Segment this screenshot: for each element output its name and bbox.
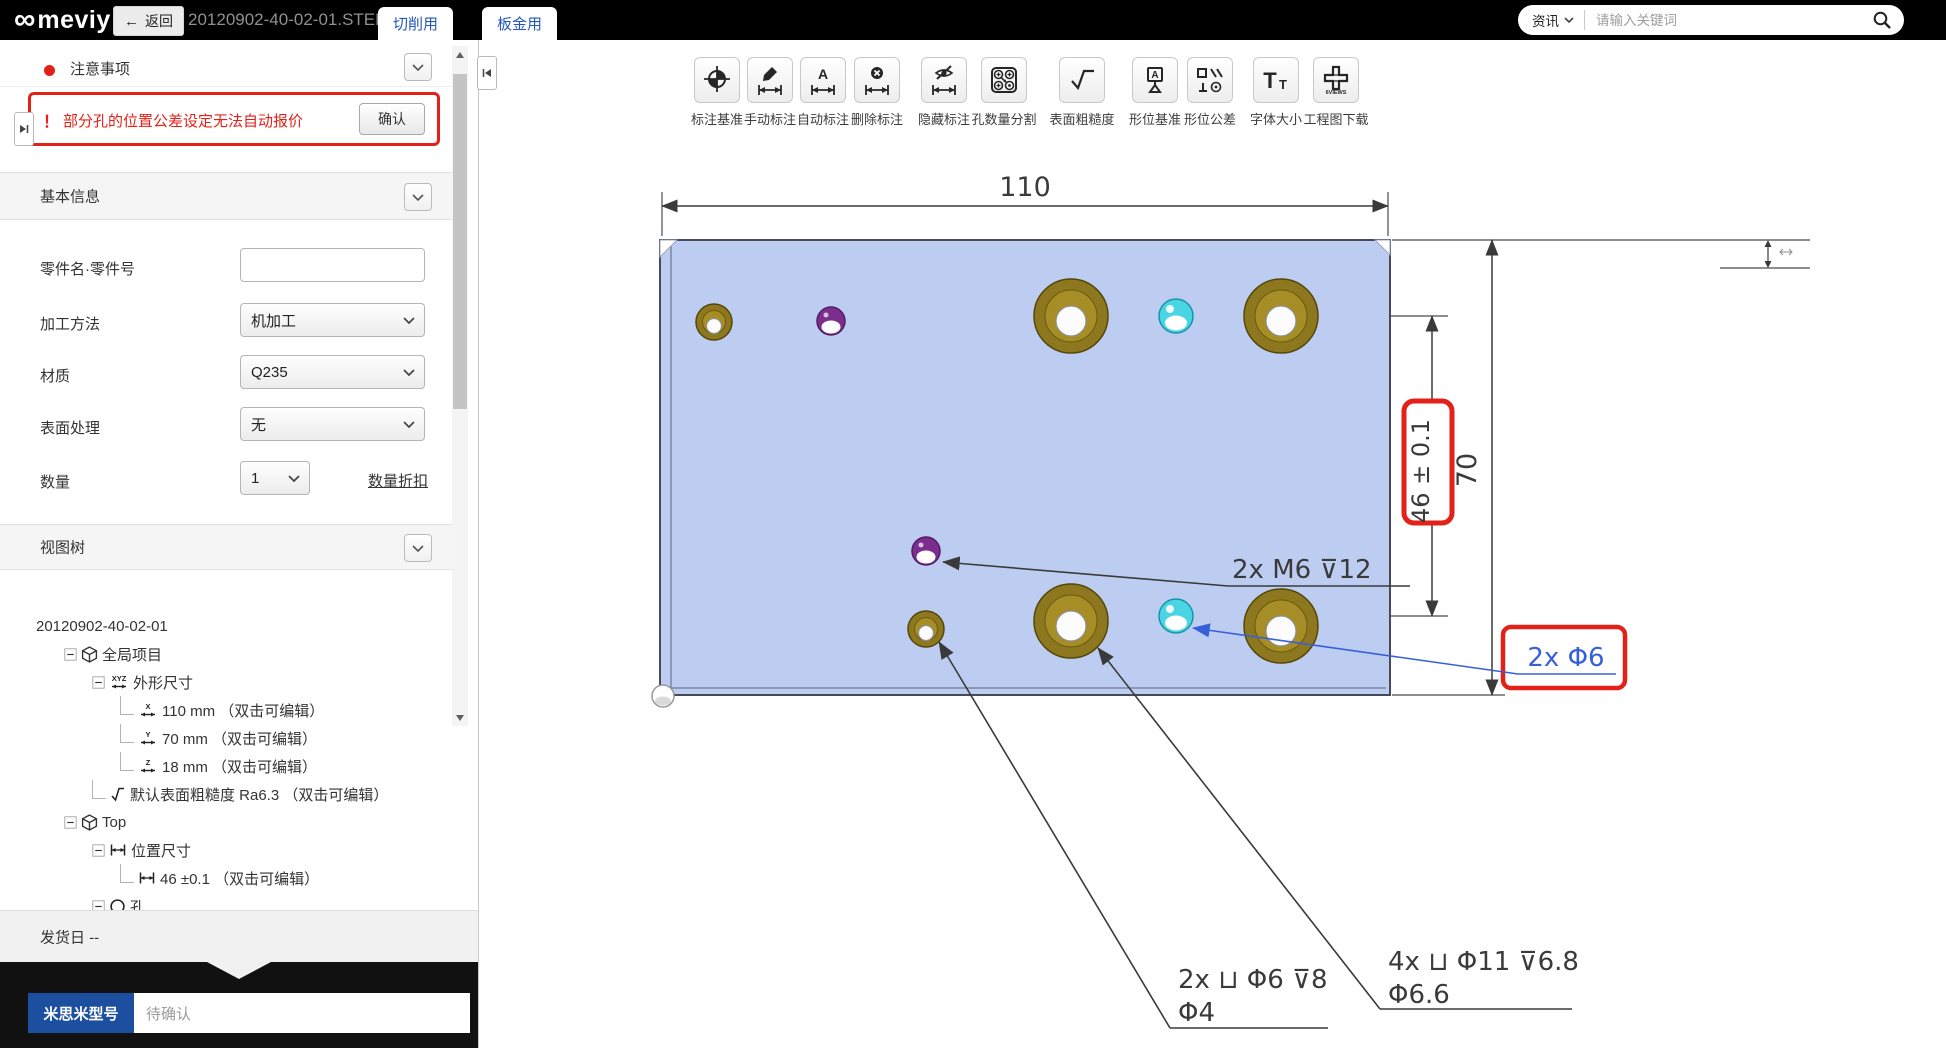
hole-cbore-large-bottom-2[interactable] [1244,589,1318,663]
tree-connector [120,864,134,883]
svg-text:X: X [145,702,150,711]
surface-value: 无 [251,414,266,435]
hole-tap-middle[interactable] [912,537,940,565]
dimension-thickness-micro [1765,240,1793,268]
tab-cutting[interactable]: 切削用 [378,7,453,40]
tree-node-label: 默认表面粗糙度 Ra6.3 （双击可编辑） [130,784,388,805]
tree-node-label: 外形尺寸 [133,672,193,693]
quantity-select[interactable]: 1 [240,461,310,495]
tree-collapse-icon[interactable] [64,648,77,661]
cbore-large-annotation-line2[interactable]: Φ6.6 [1388,980,1450,1010]
view-tree: 20120902-40-02-01 全局项目 XYZ 外形尺寸 X [36,612,466,950]
tree-connector [120,752,134,771]
shipping-date-text: 发货日 -- [40,927,99,948]
caret-right-bar-icon [19,124,29,134]
notice-section-header: 注意事项 [0,46,452,87]
tree-node-label: Top [102,814,126,831]
cbore-small-annotation-line1[interactable]: 2x ⊔ Φ6 ⊽8 [1178,965,1328,995]
tree-connector [120,724,134,743]
tree-node-global[interactable]: 全局项目 [36,640,466,668]
tree-node-dim-z[interactable]: Z 18 mm （双击可编辑） [36,752,466,780]
tree-node-46-tolerance[interactable]: 46 ±0.1 （双击可编辑） [36,864,466,892]
material-label: 材质 [40,365,70,386]
misumi-model-label: 米思米型号 [28,993,134,1033]
origin-ball [652,685,674,707]
cube-icon [81,814,98,831]
hole-cbore-small-bottom[interactable] [908,611,944,647]
hole-through-cyan-bottom[interactable] [1159,599,1193,633]
hole-cbore-large-bottom-1[interactable] [1034,584,1108,658]
xyz-dimension-icon: XYZ [109,674,129,691]
meviy-logo-text: meviy [37,6,110,35]
triangle-up-icon [456,52,464,58]
cbore-large-annotation-line1[interactable]: 4x ⊔ Φ11 ⊽6.8 [1388,947,1579,977]
chevron-down-icon [411,542,425,554]
topbar: ∞ meviy ← 返回 20120902-40-02-01.STEP 切削用 … [0,0,1946,40]
chevron-down-icon [411,191,425,203]
tree-node-label: 全局项目 [102,644,162,665]
svg-text:Y: Y [145,730,150,739]
tree-node-label: 46 ±0.1 （双击可编辑） [160,868,319,889]
hole-through-cyan-top[interactable] [1159,299,1193,333]
dimension-width-value[interactable]: 110 [999,172,1051,203]
cbore-large-leader-line [1098,648,1380,1009]
dimension-46-value[interactable]: 46 ± 0.1 [1407,419,1435,523]
tree-node-dim-y[interactable]: Y 70 mm （双击可编辑） [36,724,466,752]
tab-sheet-metal[interactable]: 板金用 [482,7,557,40]
tree-node-label: 18 mm （双击可编辑） [162,756,317,777]
tree-root[interactable]: 20120902-40-02-01 [36,612,466,640]
chevron-down-icon [287,472,301,484]
basic-info-title: 基本信息 [40,186,100,207]
surface-select[interactable]: 无 [240,407,425,441]
bar-caret-left-icon [482,68,492,78]
viewer-area: 标注基准 手动标注 A [480,40,1946,1048]
shipping-date-bar: 发货日 -- [0,910,478,963]
global-search: 资讯 [1518,5,1904,35]
tree-node-top-view[interactable]: Top [36,808,466,836]
view-tree-collapse-button[interactable] [404,534,432,562]
hole-cbore-small-top[interactable] [696,304,732,340]
notice-collapse-button[interactable] [404,53,432,81]
back-button[interactable]: ← 返回 [113,6,184,36]
shipping-date-value: -- [89,930,99,947]
svg-text:XYZ: XYZ [112,674,127,683]
search-input[interactable] [1594,12,1866,29]
quantity-discount-link[interactable]: 数量折扣 [368,470,428,491]
tree-collapse-icon[interactable] [92,676,105,689]
back-label: 返回 [145,11,173,31]
surface-label: 表面处理 [40,417,100,438]
left-panel: 注意事项 ！ 部分孔的位置公差设定无法自动报价 确认 基本信息 零件名·零件号 … [0,40,479,1048]
warning-message: 部分孔的位置公差设定无法自动报价 [63,110,303,131]
triangle-down-icon [456,715,464,721]
tree-connector [120,696,134,715]
quote-footer: 米思米型号 待确认 [0,962,478,1048]
width-dimension-icon [138,870,156,886]
expand-panel-notch[interactable] [207,962,271,979]
tree-node-position-dims[interactable]: 位置尺寸 [36,836,466,864]
part-name-input[interactable] [240,248,425,282]
tree-collapse-icon[interactable] [92,844,105,857]
tree-root-label: 20120902-40-02-01 [36,618,168,635]
chevron-down-icon [402,418,416,430]
tree-node-roughness[interactable]: 默认表面粗糙度 Ra6.3 （双击可编辑） [36,780,466,808]
search-category-dropdown[interactable]: 资讯 [1532,10,1575,30]
process-label: 加工方法 [40,313,100,334]
svg-text:Z: Z [146,758,151,767]
open-file-name: 20120902-40-02-01.STEP [188,0,386,40]
tree-collapse-icon[interactable] [64,816,77,829]
chevron-down-icon [411,61,425,73]
alert-dot-icon [44,65,55,76]
view-tree-title: 视图树 [40,537,85,558]
hole-cbore-large-top-1[interactable] [1034,279,1108,353]
chevron-down-icon [402,314,416,326]
process-select[interactable]: 机加工 [240,303,425,337]
width-dimension-icon [109,842,127,858]
cbore-small-leader-line [939,642,1170,1028]
basic-info-section-header: 基本信息 [0,172,452,220]
meviy-logo[interactable]: ∞ meviy [14,0,111,40]
shipping-date-label: 发货日 [40,930,85,947]
search-divider [1584,10,1585,30]
notice-title: 注意事项 [70,58,130,79]
view-tree-section-header: 视图树 [0,524,452,570]
warning-exclamation-icon: ！ [43,108,59,132]
sidebar-scrollbar[interactable] [452,46,468,726]
scrollbar-thumb[interactable] [453,74,467,409]
basic-info-collapse-button[interactable] [404,183,432,211]
position-tolerance-warning: ！ 部分孔的位置公差设定无法自动报价 确认 [28,92,440,146]
x-dimension-icon: X [138,702,158,719]
through-hole-annotation[interactable]: 2x Φ6 [1527,643,1604,673]
scroll-up-button[interactable] [452,46,468,63]
part-name-label: 零件名·零件号 [40,258,135,279]
search-icon[interactable] [1872,10,1892,30]
misumi-model-value: 待确认 [134,993,470,1033]
quantity-value: 1 [251,470,259,487]
search-category-label: 资讯 [1532,10,1559,30]
tree-node-label: 位置尺寸 [131,840,191,861]
hole-tap-top[interactable] [817,307,845,335]
material-select[interactable]: Q235 [240,355,425,389]
panel-collapse-handle[interactable] [477,56,497,90]
chevron-down-icon [402,366,416,378]
tree-connector [92,780,106,799]
tree-node-dim-x[interactable]: X 110 mm （双击可编辑） [36,696,466,724]
y-dimension-icon: Y [138,730,158,747]
cad-viewport[interactable]: 110 70 46 ± 0.1 [480,40,1946,1048]
chevron-down-icon [1563,15,1575,25]
back-arrow-icon: ← [124,13,139,30]
meviy-logo-icon: ∞ [14,0,35,40]
material-value: Q235 [251,364,288,381]
dimension-height-value[interactable]: 70 [1452,453,1483,487]
z-dimension-icon: Z [138,758,158,775]
hole-cbore-large-top-2[interactable] [1244,279,1318,353]
tree-node-outline-size[interactable]: XYZ 外形尺寸 [36,668,466,696]
tree-node-label: 110 mm （双击可编辑） [162,700,324,721]
tree-node-label: 70 mm （双击可编辑） [162,728,317,749]
scroll-down-button[interactable] [452,709,468,726]
process-value: 机加工 [251,310,296,331]
meviy-app: ∞ meviy ← 返回 20120902-40-02-01.STEP 切削用 … [0,0,1946,1048]
cube-icon [81,646,98,663]
quantity-label: 数量 [40,471,70,492]
confirm-button[interactable]: 确认 [359,103,425,135]
tap-annotation[interactable]: 2x M6 ⊽12 [1232,555,1372,585]
surface-roughness-icon [110,786,126,802]
cbore-small-annotation-line2[interactable]: Φ4 [1178,998,1215,1028]
panel-expand-handle[interactable] [14,112,34,146]
